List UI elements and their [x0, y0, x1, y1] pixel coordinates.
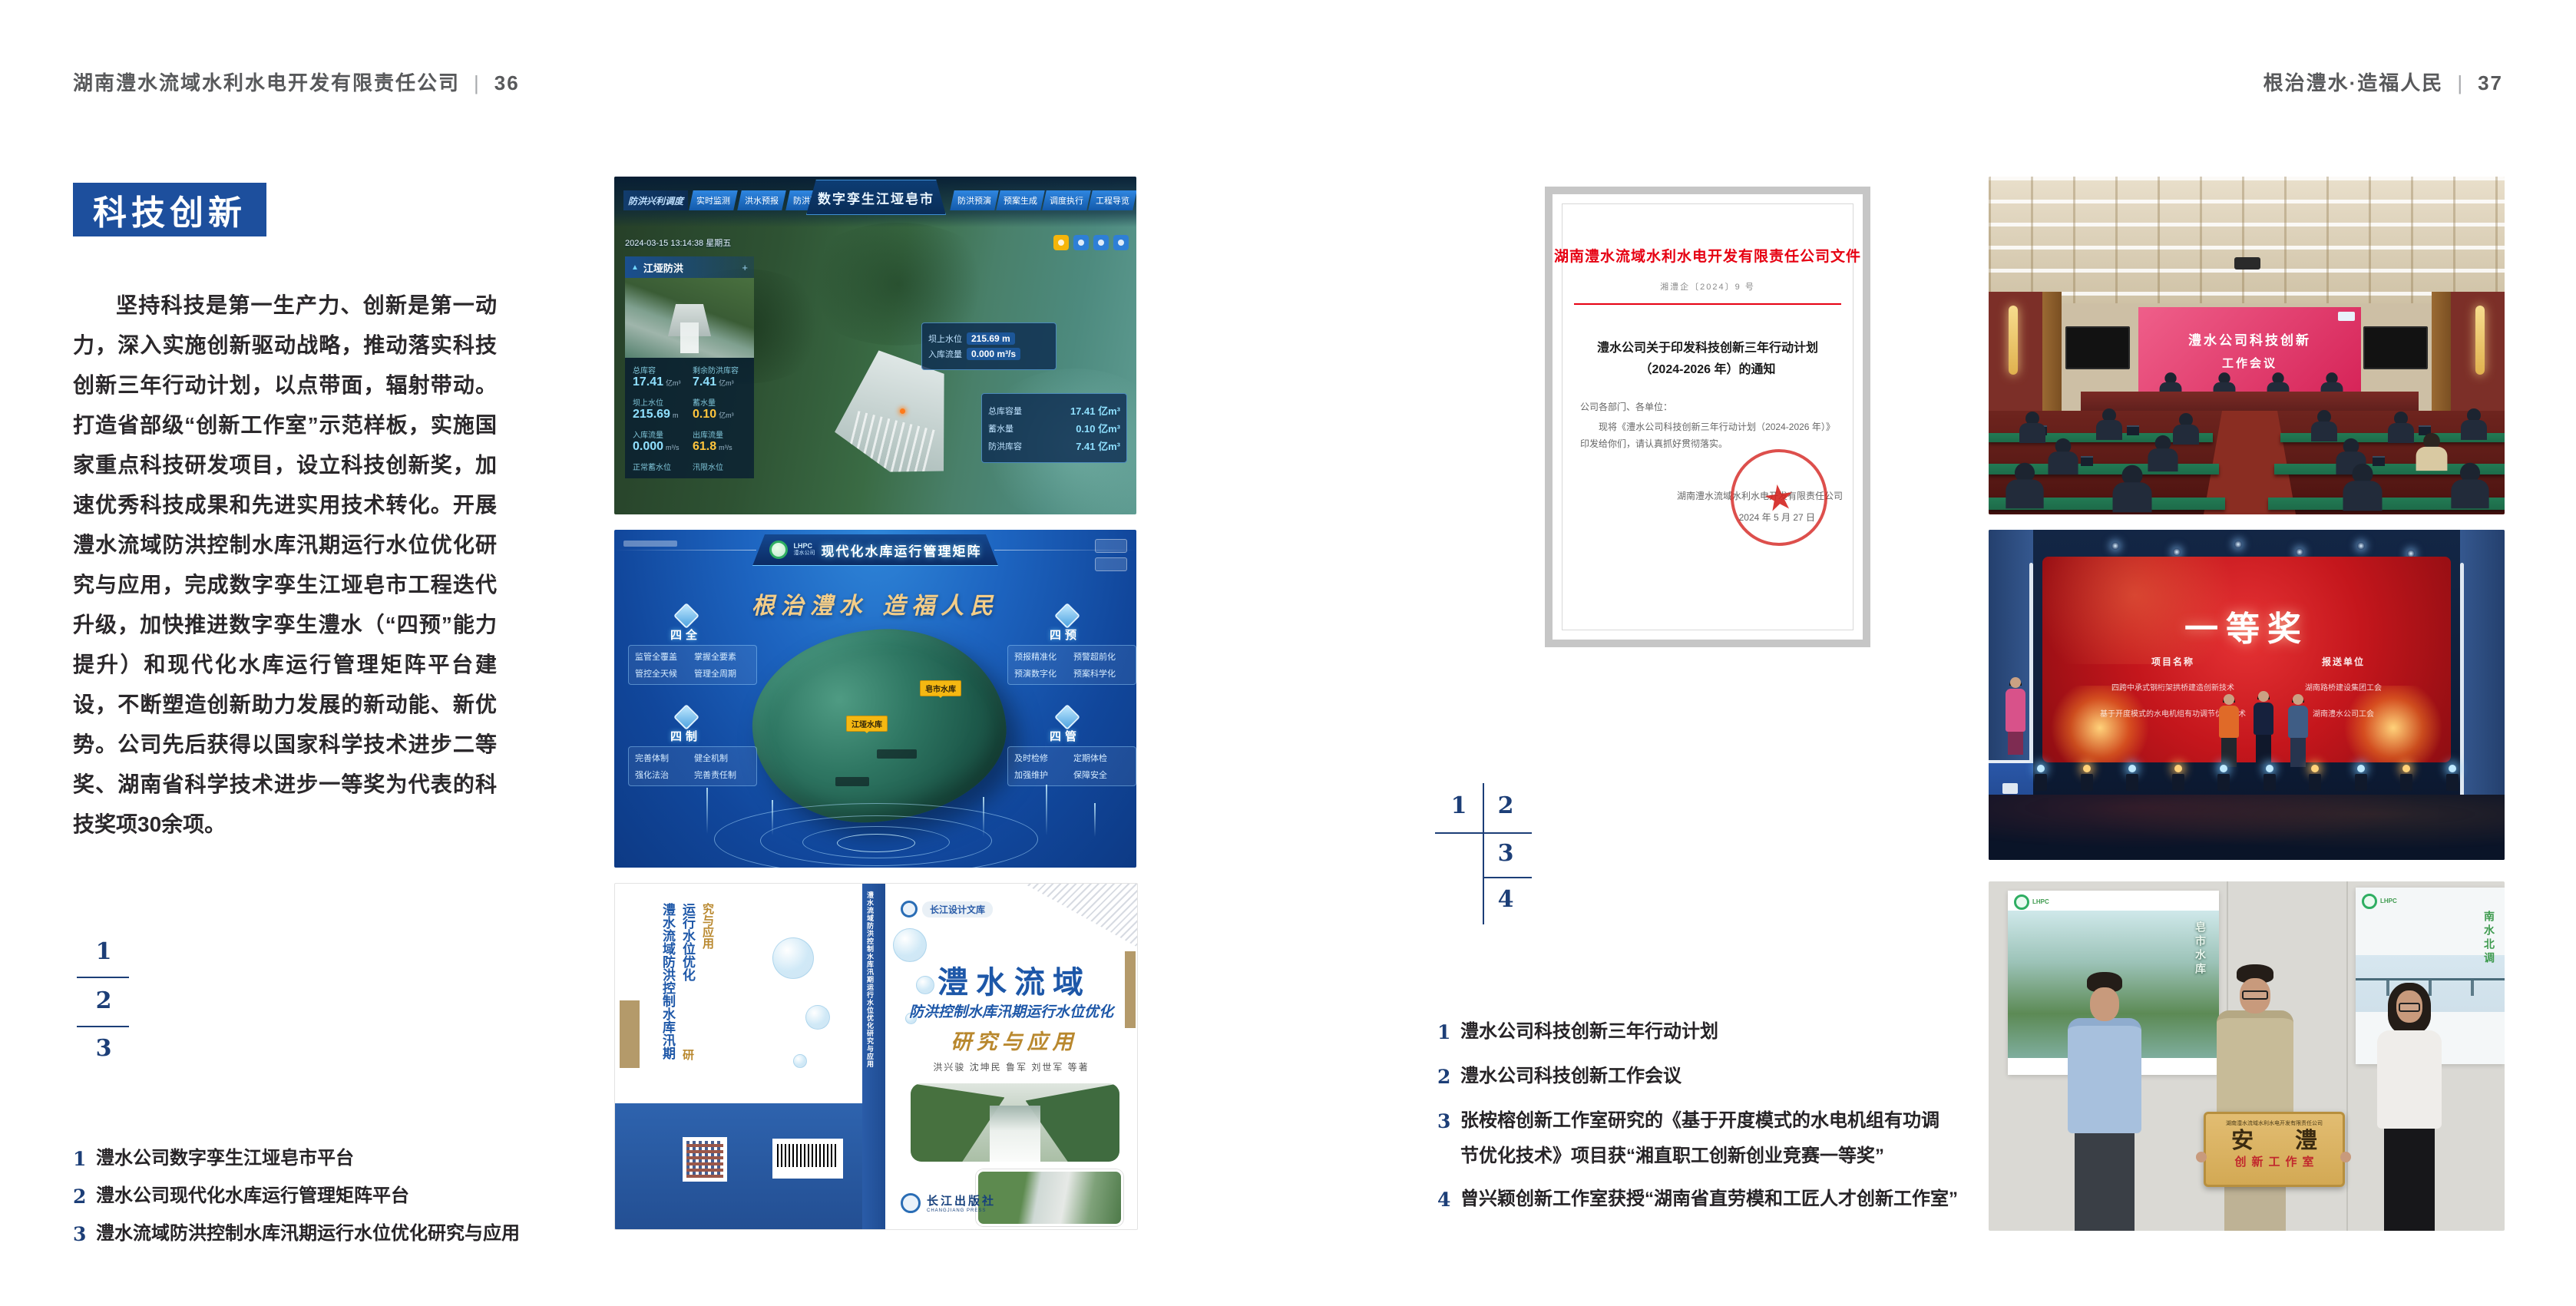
document-title-line2: （2024-2026 年）的通知	[1553, 359, 1863, 377]
matrix-timestamp	[623, 541, 677, 547]
stage-lights-row	[2035, 765, 2459, 795]
alert-icon	[1113, 235, 1129, 250]
stat-normal-level: 正常蓄水位	[633, 461, 686, 472]
dam-photo-small	[976, 1169, 1123, 1226]
document-red-rule	[1574, 303, 1841, 305]
caption-number: 3	[73, 1223, 96, 1245]
stage-light-dot	[2296, 548, 2303, 556]
matrix-chip	[1095, 539, 1127, 553]
document-title-line1: 澧水公司关于印发科技创新三年行动计划	[1553, 337, 1863, 355]
attendee	[2343, 464, 2383, 511]
section-badge: 科技创新	[73, 183, 266, 236]
panel-siguan: 及时检修定期体检 加强维护保障安全	[1007, 746, 1136, 786]
glasses-icon	[2399, 1003, 2420, 1012]
book-title-main: 澧水流域	[907, 957, 1122, 1002]
presenter-suit	[2254, 694, 2273, 764]
locate-icon	[1093, 235, 1109, 250]
water-bubble	[772, 937, 814, 979]
wall-tv	[2363, 326, 2428, 369]
winner-orange	[2219, 697, 2239, 767]
reservoir-panel-header: ▲ 江垭防洪 +	[625, 256, 754, 278]
map-label-small	[835, 777, 869, 786]
book-title-sub: 防洪控制水库汛期运行水位优化	[888, 1000, 1134, 1021]
seal-star-icon: ★	[1761, 474, 1797, 520]
screen-logo-icon	[2338, 312, 2355, 321]
attendee	[2311, 410, 2337, 441]
stat-outflow: 出库流量61.8m³/s	[693, 428, 746, 454]
lhpc-ring-icon	[2014, 894, 2029, 910]
moving-head-light	[2400, 765, 2412, 795]
lhpc-ring-icon	[2362, 894, 2377, 909]
panel-title-siquan: 四全	[628, 627, 743, 643]
tab-realtime-monitor: 实时监测	[689, 190, 738, 210]
document-inner-border	[1562, 203, 1853, 630]
book-spread: { "page_left": { "header_title": "湖南澧水流域…	[0, 0, 2576, 1306]
award-row-unit: 湖南路桥建设集团工会	[2259, 681, 2428, 693]
poster-right-vtext: 南水北调	[2482, 911, 2497, 966]
person-left	[2062, 972, 2147, 1231]
podium-sign	[2002, 783, 2018, 794]
caption-row: 3 澧水流域防洪控制水库汛期运行水位优化研究与应用	[73, 1223, 549, 1251]
wall-lamp	[2009, 306, 2018, 375]
qr-code	[683, 1137, 727, 1182]
caption-text: 澧水公司科技创新工作会议	[1460, 1059, 1682, 1094]
dashboard-title: 数字孪生江垭皂市	[806, 180, 946, 215]
page-number: 36	[494, 71, 520, 94]
map-label-jiangya: 江垭水库	[846, 716, 888, 732]
matrix-chip	[1095, 557, 1127, 571]
attendee	[2461, 408, 2487, 440]
caption-text: 曾兴颖创新工作室获授“湖南省直劳模和工匠人才创新工作室”	[1460, 1182, 1958, 1217]
water-bubble	[793, 1054, 807, 1068]
layers-icon	[1073, 235, 1089, 250]
lhpc-logo-icon	[769, 541, 788, 559]
caption-number: 2	[73, 1185, 96, 1208]
moving-head-light	[2126, 765, 2138, 795]
spillway	[990, 1106, 1040, 1162]
light-pillar	[706, 788, 708, 834]
lhpc-logo-text: LHPC澧水公司	[794, 543, 815, 557]
golden-orb	[2343, 686, 2443, 762]
innovation-studio-plaque: 湖南澧水流域水利水电开发有限责任公司 安 澧 创新工作室	[2204, 1112, 2345, 1187]
lhpc-logo: LHPC	[2014, 894, 2049, 910]
panel-title-siguan: 四管	[1007, 728, 1123, 744]
laptop	[2081, 456, 2093, 466]
caption-number: 1	[73, 1148, 96, 1170]
stat-upstream-level: 坝上水位215.69m	[633, 396, 686, 422]
figure-index-2: 2	[1494, 792, 1517, 819]
figure-award-ceremony: 一等奖 项目名称 报送单位 四跨中承式钢桁架拱桥建造创新技术 湖南路桥建设集团工…	[1989, 530, 2505, 860]
column-unit: 报送单位	[2267, 655, 2420, 668]
worker-marker	[900, 408, 905, 414]
figure-index-3: 3	[1494, 840, 1517, 867]
bridge-pier	[2471, 980, 2474, 996]
user-icon	[1053, 235, 1069, 250]
stat-storage: 蓄水量0.10亿m³	[693, 396, 746, 422]
award-row-unit: 湖南澧水公司工会	[2259, 707, 2428, 719]
reservoir-panel: ▲ 江垭防洪 + 总库容17.41亿m³ 剩余防洪库容7.41亿m³ 坝上水位2…	[625, 256, 754, 478]
reservoir-panel-title: 江垭防洪	[643, 260, 683, 275]
moving-head-light	[2172, 765, 2184, 795]
dashboard-timestamp: 2024-03-15 13:14:38 星期五	[625, 236, 731, 249]
led-screen: 一等奖 项目名称 报送单位 四跨中承式钢桁架拱桥建造创新技术 湖南路桥建设集团工…	[2042, 557, 2451, 762]
figure-index-4: 4	[1494, 886, 1517, 913]
panel-siyu: 预报精准化预警超前化 预演数字化预案科学化	[1007, 645, 1136, 685]
attendee	[2048, 438, 2078, 474]
tab-flood-forecast: 洪水预报	[737, 190, 786, 210]
section-body-text: 坚持科技是第一生产力、创新是第一动力，深入实施创新驱动战略，推动落实科技创新三年…	[73, 286, 497, 845]
book-spine: 澧水流域防洪控制水库汛期运行水位优化研究与应用	[862, 884, 885, 1229]
water-level-callout: 坝上水位215.69 m 入库流量0.000 m³/s	[921, 322, 1057, 370]
person-middle	[2213, 964, 2297, 1231]
attendee	[2148, 435, 2178, 471]
figure-index-3: 3	[79, 1035, 128, 1062]
dashboard-nav-label: 防洪兴利调度	[623, 190, 688, 210]
document-red-header: 湖南澧水流域水利水电开发有限责任公司文件	[1553, 245, 1863, 266]
light-pillar	[1046, 785, 1047, 835]
caption-number: 4	[1437, 1189, 1460, 1211]
book-motto: 根治澧水·造福人民	[2264, 71, 2444, 94]
figure-index-vline	[1483, 783, 1484, 924]
tab-plan-generation: 预案生成	[996, 190, 1045, 210]
stage-light-dot	[2173, 548, 2181, 556]
caption-number: 3	[1437, 1110, 1460, 1132]
figure-innovation-studio: LHPC 皂市水库 LHPC 南水北调 湖南澧水流域水利	[1989, 881, 2505, 1231]
pyramid-icon: ▲	[631, 263, 639, 272]
wall-tv	[2065, 326, 2130, 369]
series-logo-icon	[901, 901, 918, 918]
figure-index-1: 1	[79, 938, 128, 965]
thumb-spill	[680, 322, 699, 353]
figure-index-divider	[77, 977, 129, 978]
hand	[2196, 1152, 2207, 1162]
figure-index-divider	[1435, 832, 1532, 834]
panel-icon-siguan	[1054, 704, 1080, 730]
moving-head-light	[2217, 765, 2230, 795]
dam-thumbnail	[625, 278, 754, 358]
caption-number: 2	[1437, 1066, 1460, 1088]
stage-light-dot	[2111, 542, 2119, 550]
series-badge: 长江设计文库	[901, 901, 993, 918]
expand-icon: +	[742, 262, 748, 273]
panel-title-siyu: 四预	[1007, 627, 1123, 643]
laptop	[2127, 425, 2139, 435]
running-head-left: 湖南澧水流域水利水电开发有限责任公司|36	[73, 68, 520, 96]
figure-index-divider	[77, 1026, 129, 1027]
water-bubble	[805, 1005, 830, 1030]
ripple-ring	[837, 834, 915, 852]
plaque-title: 安 澧	[2206, 1127, 2343, 1153]
figure-management-matrix: LHPC澧水公司 现代化水库运行管理矩阵 根治澧水 造福人民 皂市水库 江垭水库…	[614, 530, 1136, 868]
map-label-small	[877, 749, 917, 759]
stage-light-dot	[2357, 542, 2365, 550]
running-head-right: 根治澧水·造福人民|37	[2264, 68, 2503, 96]
moving-head-light	[2446, 765, 2459, 795]
caption-row: 3 张桉榕创新工作室研究的《基于开度模式的水电机组有功调节优化技术》项目获“湘直…	[1437, 1110, 1975, 1174]
document-body: 现将《澧水公司科技创新三年行动计划（2024-2026 年）》印发给你们，请认真…	[1580, 418, 1835, 452]
panel-icon-sizhi	[673, 704, 699, 730]
stat-total-capacity: 总库容17.41亿m³	[633, 364, 686, 389]
golden-orb	[2050, 686, 2150, 762]
attendee	[2113, 465, 2152, 513]
tab-project-tour: 工程导览	[1088, 190, 1136, 210]
award-row-project: 四跨中承式钢桁架拱桥建造创新技术	[2081, 681, 2265, 693]
stat-flood-limit-level: 汛限水位	[693, 461, 746, 472]
publisher: 长江出版社 CHANGJIANG PRESS	[901, 1192, 996, 1213]
moving-head-light	[2309, 765, 2321, 795]
attendee	[2451, 463, 2488, 508]
attendee-khaki	[2416, 433, 2448, 471]
header-separator: |	[2457, 71, 2464, 94]
caption-text: 澧水公司现代化水库运行管理矩阵平台	[96, 1179, 409, 1214]
poster-left-vtext: 皂市水库	[2193, 921, 2208, 977]
wall-lamp	[2475, 306, 2485, 375]
attendee	[2096, 408, 2122, 440]
plaque-header: 湖南澧水流域水利水电开发有限责任公司	[2206, 1119, 2343, 1127]
book-title-tail: 研究与应用	[907, 1025, 1122, 1055]
light-pillar	[983, 797, 984, 837]
dais-table	[2081, 392, 2419, 413]
panel-siquan: 监管全覆盖掌握全要素 管控全天候管理全周期	[628, 645, 757, 685]
light-pillar	[772, 800, 773, 835]
caption-row: 4 曾兴颖创新工作室获授“湖南省直劳模和工匠人才创新工作室”	[1437, 1189, 1975, 1217]
attendee	[2006, 463, 2043, 508]
back-cover-tan-block	[620, 1000, 640, 1068]
matrix-header: LHPC澧水公司 现代化水库运行管理矩阵	[752, 534, 998, 566]
caption-row: 1 澧水公司数字孪生江垭皂市平台	[73, 1148, 534, 1176]
host-pink	[2006, 680, 2025, 755]
reservoir-stats: 总库容17.41亿m³ 剩余防洪库容7.41亿m³ 坝上水位215.69m 蓄水…	[625, 358, 754, 478]
caption-text: 张桉榕创新工作室研究的《基于开度模式的水电机组有功调节优化技术》项目获“湘直职工…	[1460, 1103, 1952, 1174]
caption-row: 2 澧水公司现代化水库运行管理矩阵平台	[73, 1185, 534, 1214]
page-number: 37	[2478, 71, 2503, 94]
wall-seam	[2346, 881, 2348, 1231]
stat-inflow: 入库流量0.000m³/s	[633, 428, 686, 454]
dam-photo-front	[911, 1083, 1119, 1162]
map-label-zaoshi: 皂市水库	[920, 680, 961, 696]
publisher-logo-icon	[901, 1193, 921, 1213]
moving-head-light	[2264, 765, 2276, 795]
figure-innovation-conference: 澧水公司科技创新 工作会议	[1989, 177, 2505, 514]
moving-head-light	[2355, 765, 2367, 795]
glasses-icon	[2242, 990, 2268, 1000]
attendee	[2388, 412, 2414, 443]
projector	[2234, 257, 2260, 269]
figure-digital-twin-dashboard: 防洪兴利调度 实时监测 洪水预报 防洪预警 数字孪生江垭皂市 防洪预演 预案生成…	[614, 177, 1136, 514]
matrix-title: 现代化水库运行管理矩阵	[822, 541, 982, 560]
light-pillar	[1094, 803, 1096, 837]
back-cover-vertical-title: 澧水流域防洪控制水库汛期运行水位优化研究与应用	[657, 903, 717, 1068]
book-authors: 洪兴骏 沈坤民 鲁军 刘世军 等著	[888, 1060, 1134, 1073]
header-separator: |	[474, 71, 481, 94]
winner-blue	[2288, 697, 2308, 767]
caption-row: 1 澧水公司科技创新三年行动计划	[1437, 1021, 1975, 1050]
reflective-stage-floor	[1989, 795, 2505, 860]
company-name: 湖南澧水流域水利水电开发有限责任公司	[73, 71, 460, 94]
document-salutation: 公司各部门、各单位：	[1580, 400, 1672, 413]
moving-head-light	[2081, 765, 2093, 795]
caption-text: 澧水公司科技创新三年行动计划	[1460, 1014, 1718, 1050]
stat-remaining-flood-capacity: 剩余防洪库容7.41亿m³	[693, 364, 746, 389]
barcode	[772, 1139, 843, 1179]
moving-head-light	[2035, 765, 2047, 795]
spine-title: 澧水流域防洪控制水库汛期运行水位优化研究与应用	[865, 891, 875, 1222]
figure-index-2: 2	[79, 987, 128, 1014]
column-project: 项目名称	[2088, 655, 2257, 668]
document-number: 湘澧企〔2024〕9 号	[1553, 280, 1863, 293]
caption-text: 澧水流域防洪控制水库汛期运行水位优化研究与应用	[96, 1216, 520, 1251]
ceiling-lights	[1989, 177, 2505, 303]
figure-index-divider	[1483, 877, 1532, 878]
caption-number: 1	[1437, 1021, 1460, 1043]
person-right	[2371, 983, 2448, 1231]
lhpc-logo: LHPC	[2362, 894, 2397, 909]
caption-text: 澧水公司数字孪生江垭皂市平台	[96, 1141, 354, 1176]
hand	[2340, 1152, 2351, 1162]
figure-book-cover: 澧水流域防洪控制水库汛期运行水位优化研究与应用 澧水流域防洪控制水库汛期运行水位…	[614, 883, 1138, 1230]
tab-flood-rehearsal: 防洪预演	[950, 190, 999, 210]
plaque-subtitle: 创新工作室	[2206, 1153, 2343, 1169]
capacity-info-box: 总库容量17.41 亿m³ 蓄水量0.10 亿m³ 防洪库容7.41 亿m³	[981, 393, 1127, 463]
figure-index-1: 1	[1447, 792, 1470, 819]
award-title: 一等奖	[2042, 601, 2451, 650]
attendee	[2019, 412, 2045, 443]
stage-light-dot	[2234, 541, 2242, 548]
tab-dispatch-execution: 调度执行	[1042, 190, 1091, 210]
header-line	[614, 550, 756, 551]
figure-official-document: 湖南澧水流域水利水电开发有限责任公司文件 湘澧企〔2024〕9 号 澧水公司关于…	[1545, 187, 1870, 647]
page-left: 湖南澧水流域水利水电开发有限责任公司|36 科技创新 坚持科技是第一生产力、创新…	[0, 0, 1288, 1306]
caption-row: 2 澧水公司科技创新工作会议	[1437, 1066, 1975, 1094]
panel-title-sizhi: 四制	[628, 728, 743, 744]
panel-sizhi: 完善体制健全机制 强化法治完善责任制	[628, 746, 757, 786]
